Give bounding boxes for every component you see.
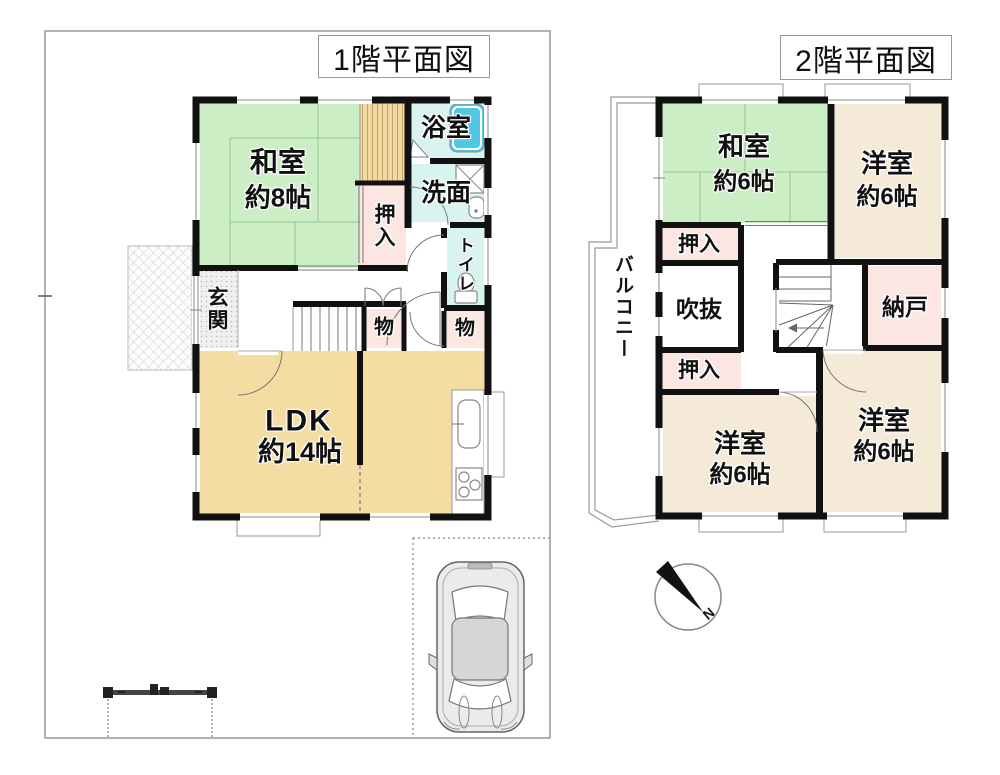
floorplan-page: N 1階平面図 2階平面図 和室 約8帖 浴室 洗面 トイレ 押入 玄関 物 物… [0, 0, 1000, 775]
f1-approach [128, 246, 192, 370]
f1-oshiire-label: 押入 [372, 203, 394, 249]
f1-wood-strip [360, 100, 406, 183]
f1-stairs [293, 306, 364, 351]
f1-storage-right-label: 物 [455, 319, 475, 340]
f2-youshitsu-ne-room [835, 100, 945, 258]
compass: N [655, 561, 721, 630]
f2-stairs [779, 263, 833, 349]
f2-nando-label: 納戸 [882, 295, 928, 319]
f2-youshitsu-se-label: 洋室 [858, 407, 910, 434]
f2-youshitsu-ne-label: 洋室 [861, 150, 913, 177]
floor2-title-text: 2階平面図 [795, 36, 937, 80]
f2-washitsu-label: 和室 [718, 133, 770, 160]
f2-balcony-label: バルコニー [612, 255, 632, 360]
car-icon [429, 562, 532, 732]
floorplan-drawing: N [0, 0, 1000, 775]
f1-ldk-size: 約14帖 [258, 438, 342, 466]
f1-washitsu-label: 和室 [250, 147, 306, 176]
f1-ldk-room [196, 351, 485, 517]
f1-bathroom-label: 浴室 [421, 115, 471, 141]
f2-oshiire-upper-label: 押入 [678, 234, 720, 256]
floor2-title: 2階平面図 [780, 35, 952, 80]
f2-youshitsu-sw-label: 洋室 [714, 430, 766, 457]
floor1-title: 1階平面図 [318, 35, 490, 78]
f2-washitsu-size: 約6帖 [713, 169, 774, 194]
floor1-title-text: 1階平面図 [333, 35, 475, 79]
washbasin [469, 197, 484, 218]
f1-ldk-label: LDK [265, 405, 333, 437]
f2-fukinuke-label: 吹抜 [676, 297, 722, 321]
f1-storage-mid-label: 物 [374, 318, 394, 339]
f2-youshitsu-ne-size: 約6帖 [856, 184, 917, 209]
kitchen-counter [452, 390, 484, 514]
f1-genkan-label: 玄関 [205, 286, 227, 332]
f2-youshitsu-se-size: 約6帖 [853, 439, 914, 464]
f2-youshitsu-sw-size: 約6帖 [709, 462, 770, 487]
f1-washitsu-size: 約8帖 [245, 184, 311, 211]
f1-toilet-label: トイレ [455, 237, 473, 294]
f1-washroom-label: 洗面 [421, 180, 471, 206]
f2-oshiire-lower-label: 押入 [678, 360, 720, 382]
